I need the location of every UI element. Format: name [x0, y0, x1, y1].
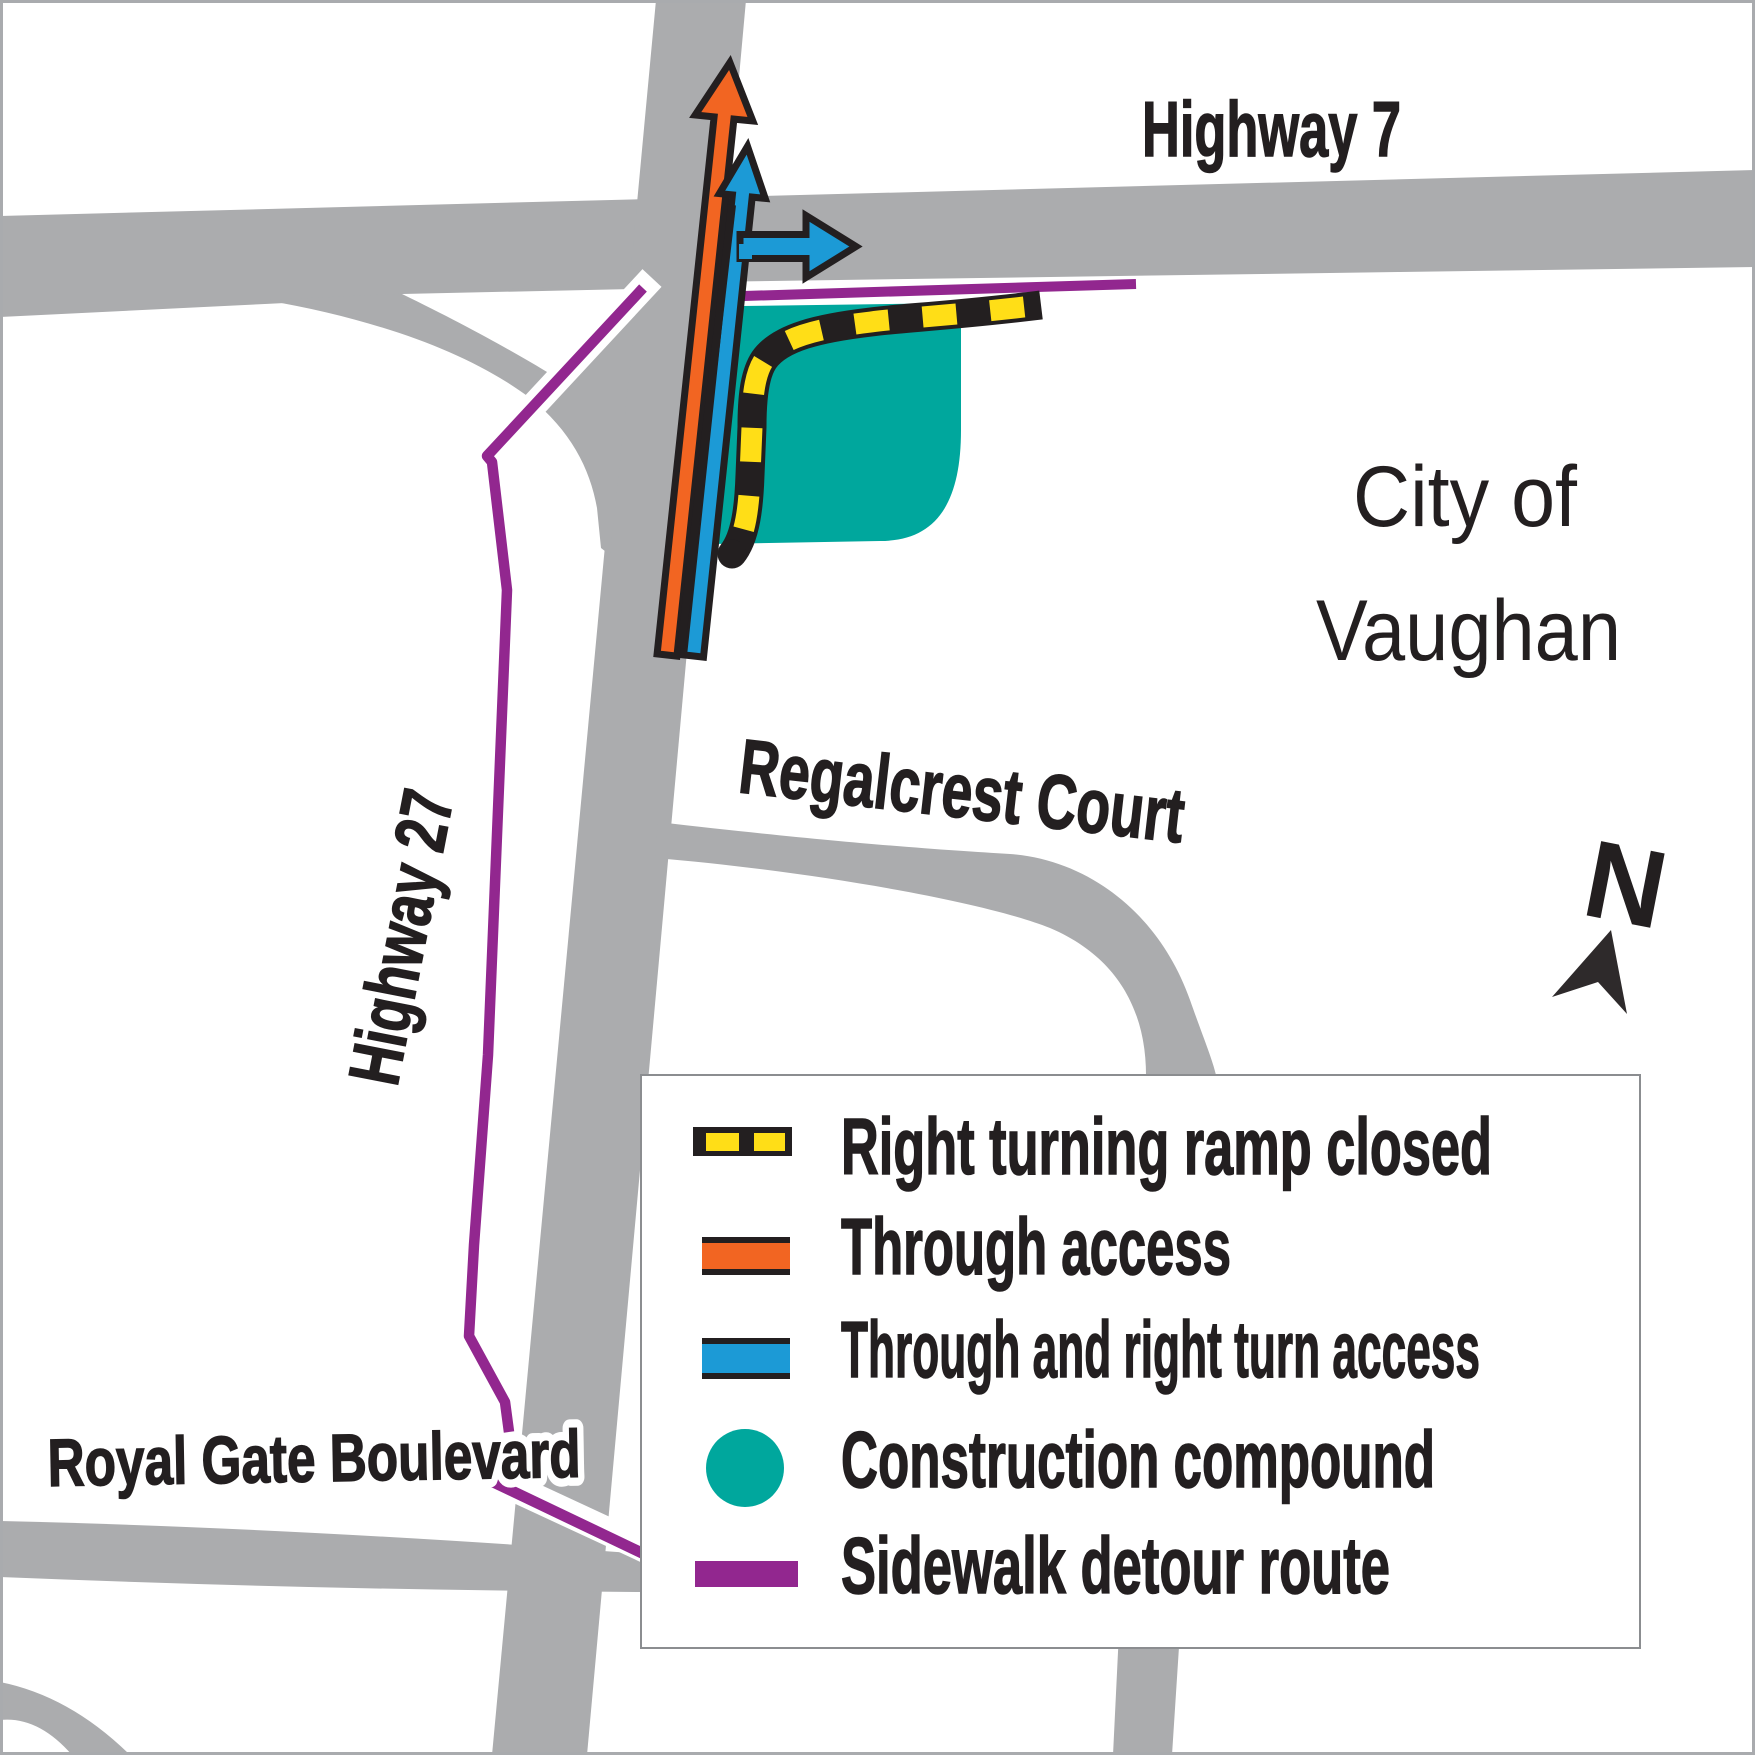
svg-text:Right turning ramp closed: Right turning ramp closed — [841, 1102, 1492, 1191]
svg-text:Highway 7: Highway 7 — [1142, 85, 1401, 173]
svg-text:City of: City of — [1353, 449, 1578, 545]
svg-text:Vaughan: Vaughan — [1316, 583, 1621, 679]
svg-text:Through access: Through access — [841, 1202, 1231, 1291]
svg-text:Royal Gate Boulevard: Royal Gate Boulevard — [47, 1417, 581, 1501]
svg-text:Through and right turn access: Through and right turn access — [841, 1305, 1480, 1394]
svg-text:Sidewalk detour route: Sidewalk detour route — [841, 1521, 1390, 1610]
svg-text:Construction compound: Construction compound — [841, 1415, 1435, 1504]
